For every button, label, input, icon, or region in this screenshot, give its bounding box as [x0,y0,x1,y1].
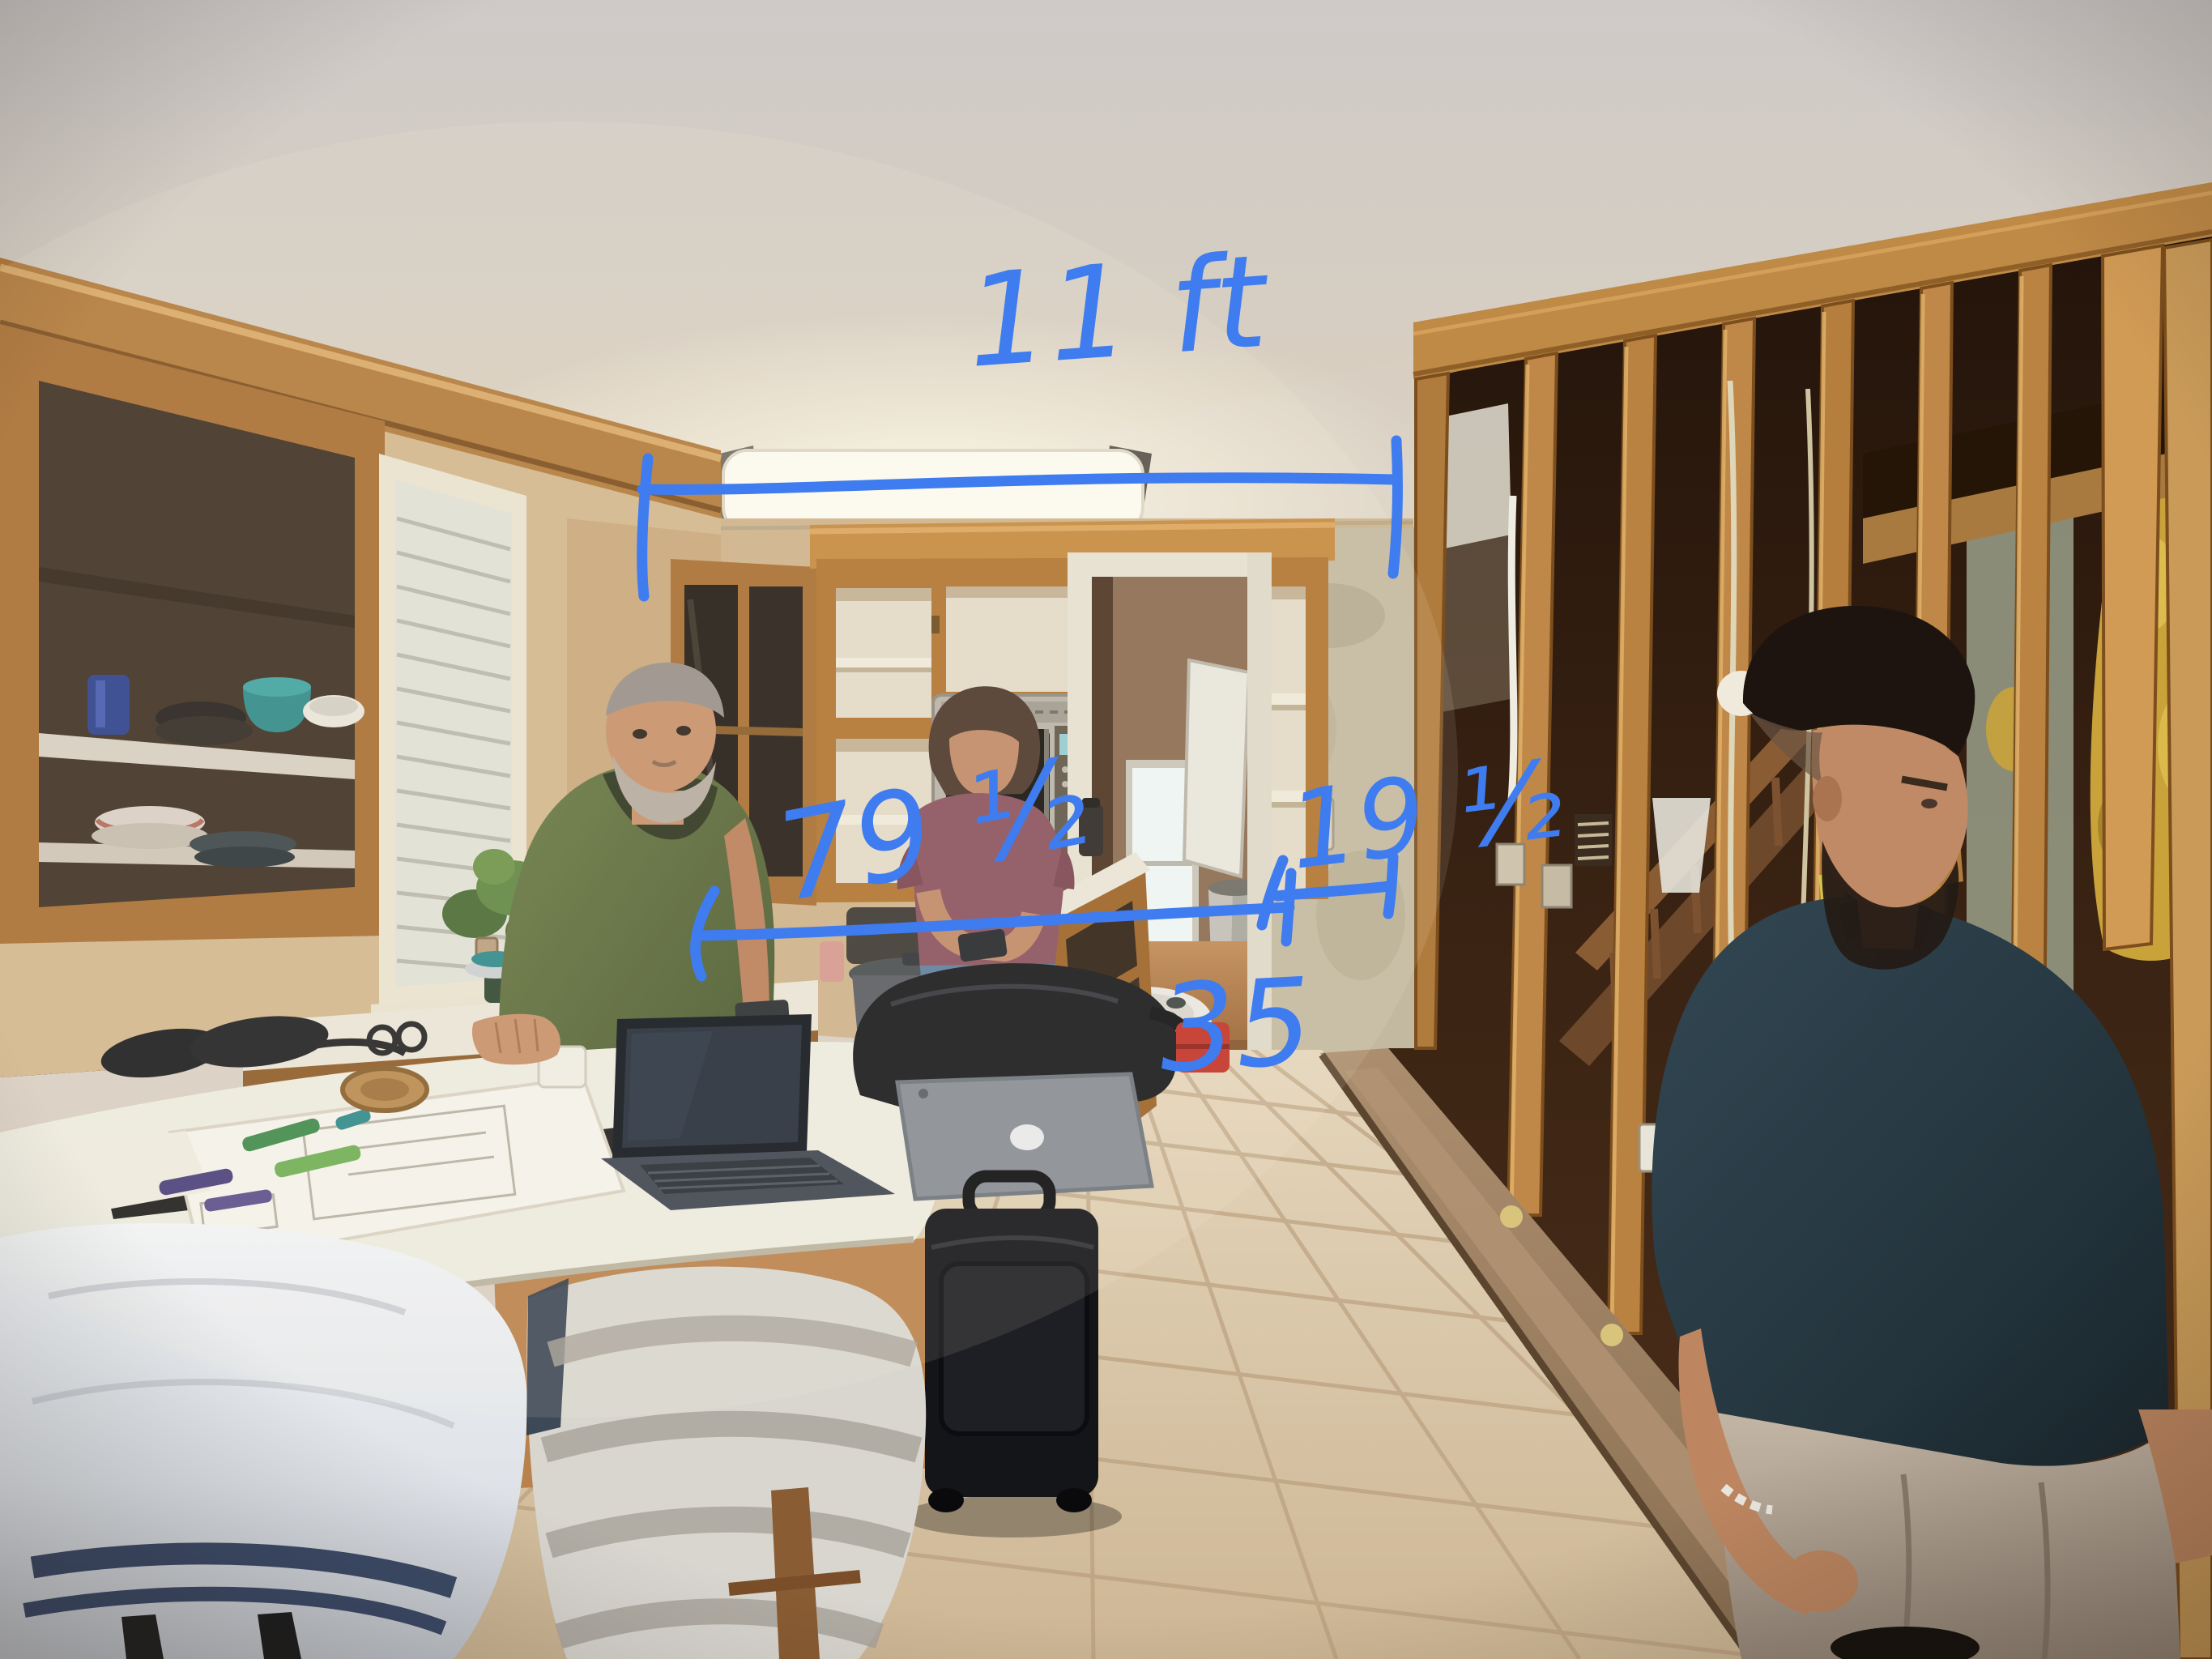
tick-left [642,458,648,596]
scene-canvas: 11 ft 79 ½ 19 ½ 35 [0,0,2212,1659]
photo-kitchen-renovation: 11 ft 79 ½ 19 ½ 35 [0,0,2212,1659]
tick-right [1286,873,1291,941]
annotation-opening-width: 35 [1156,952,1315,1099]
annotation-ceiling-span: 11 ft [962,227,1275,397]
tick-right [1393,441,1397,574]
